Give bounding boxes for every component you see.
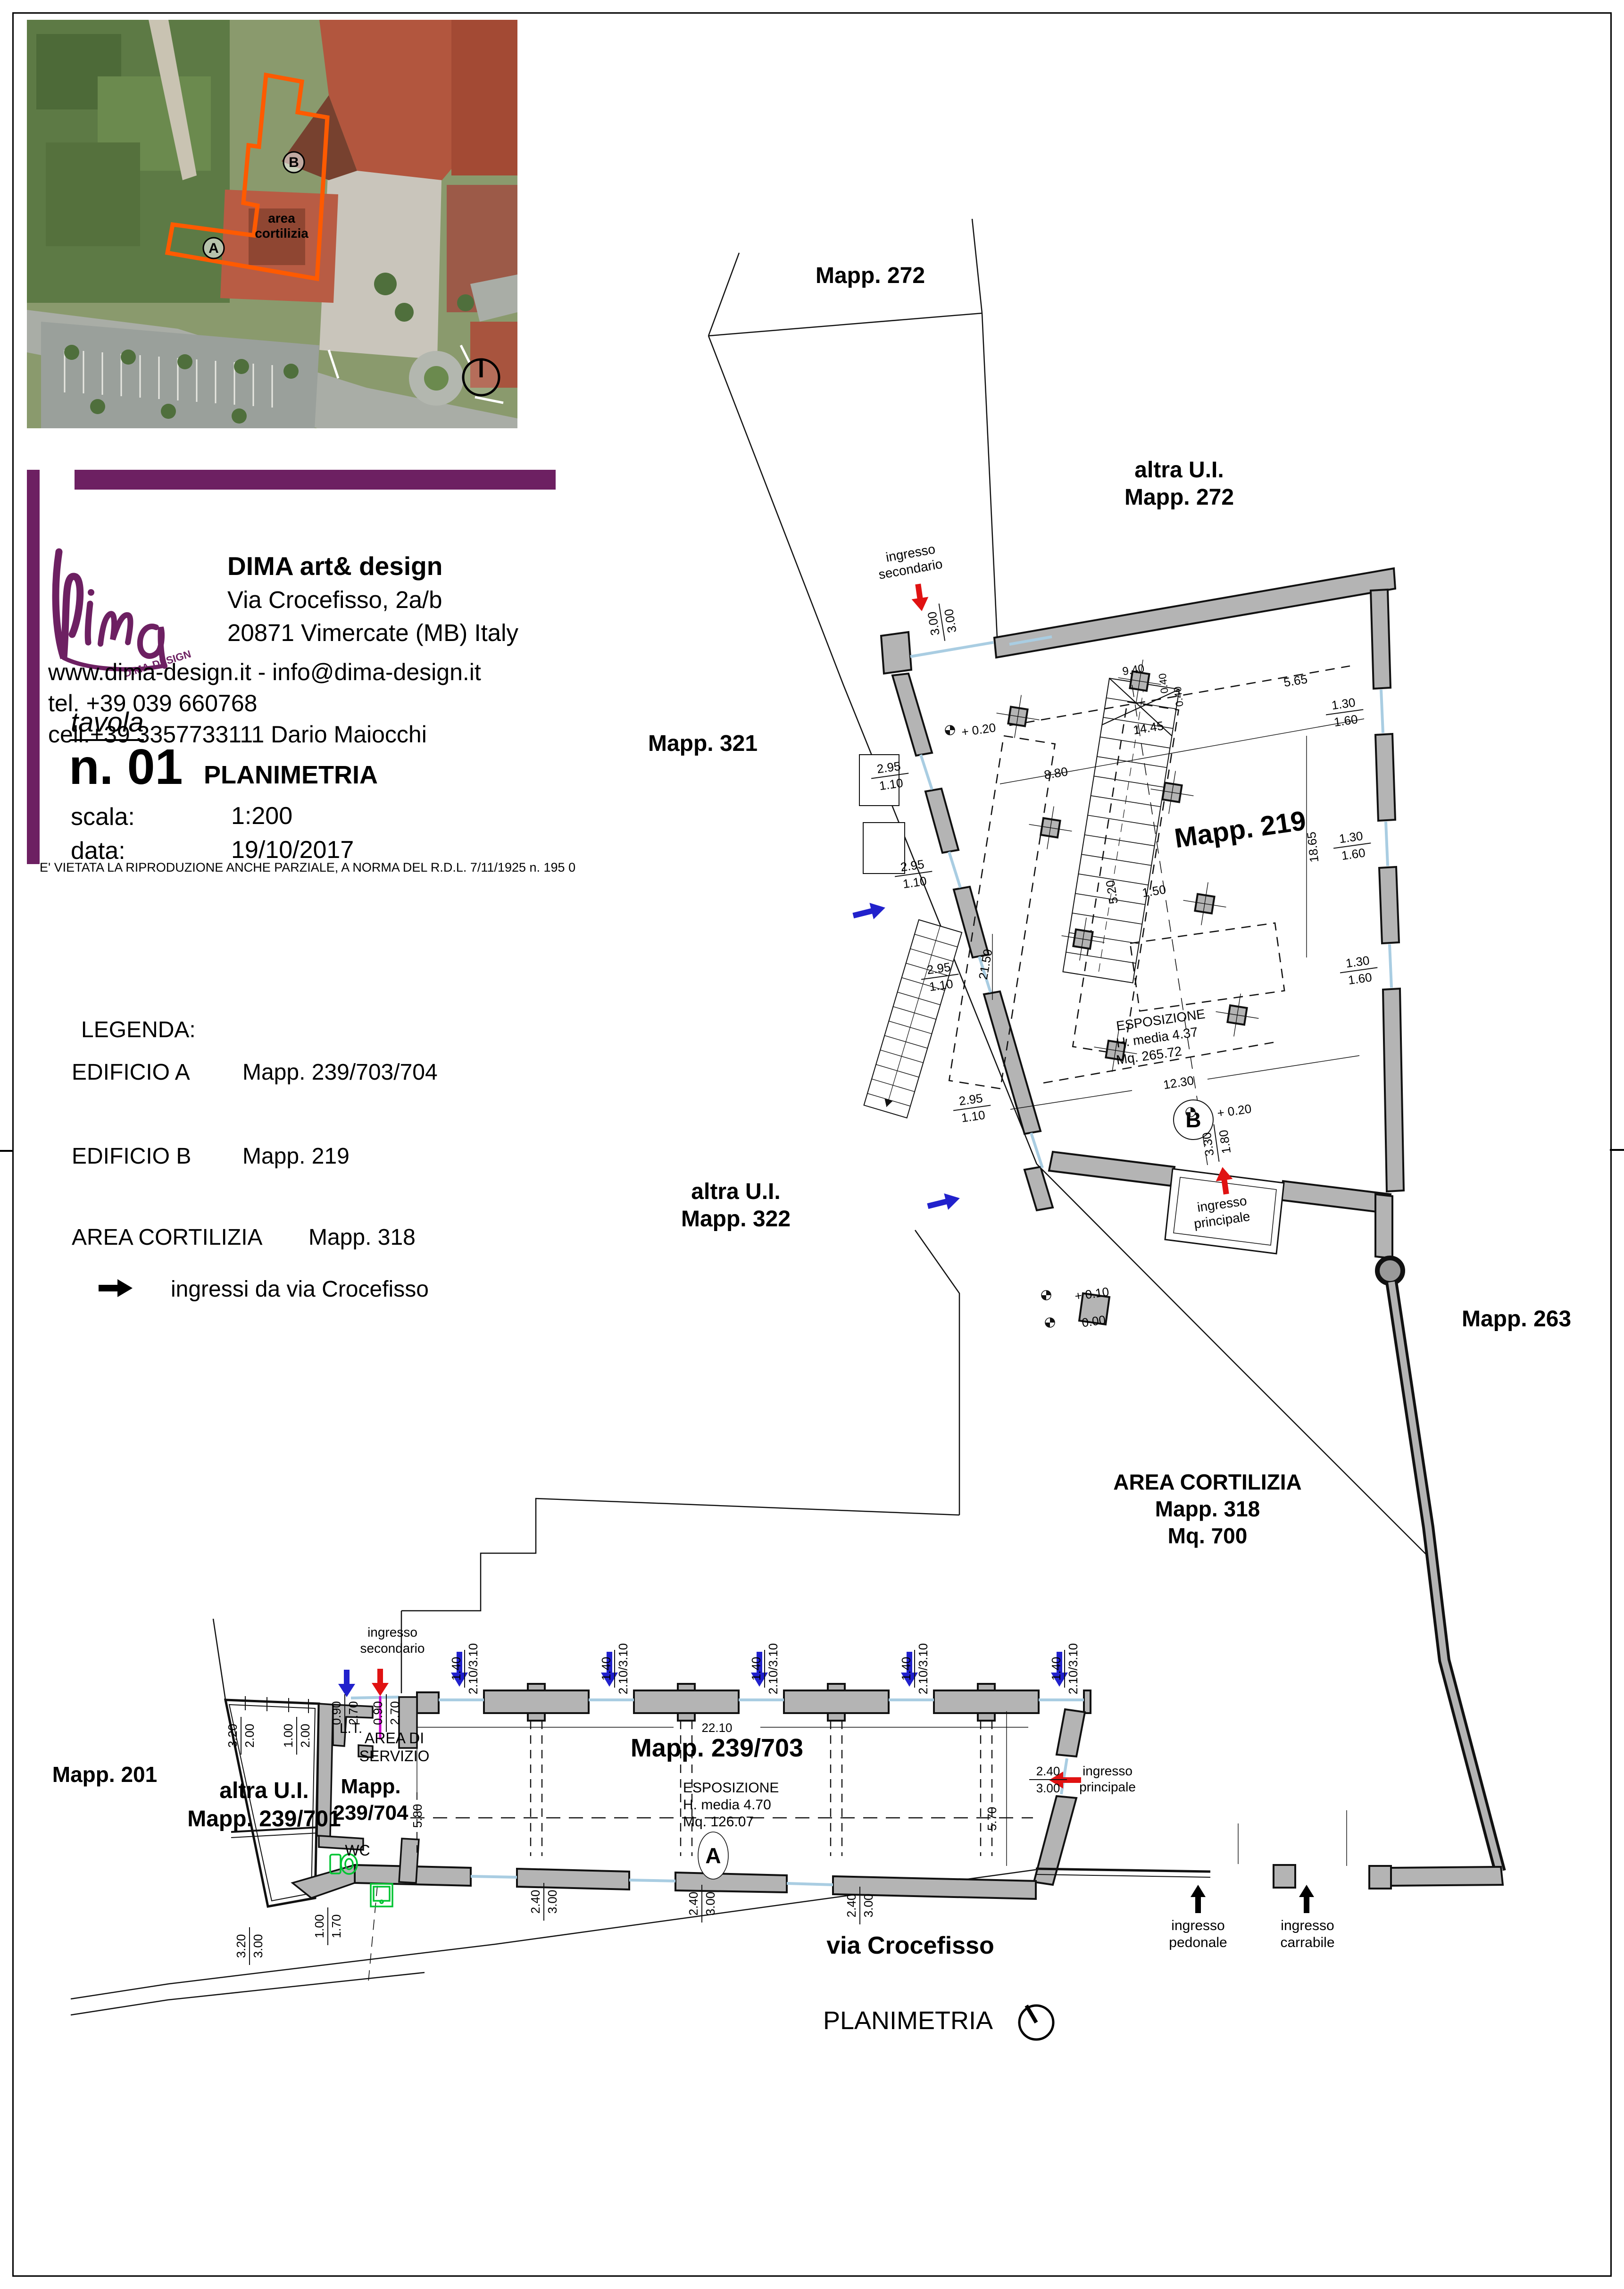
dim-8-80: 8.80 [1043,764,1069,782]
svg-text:1.30: 1.30 [1345,953,1370,971]
svg-text:2.40: 2.40 [844,1894,858,1918]
annex-win2: 3.203.00 [234,1927,265,1965]
wc-sink-icon [371,1884,392,1906]
altra-ui-mapp-272: altra U.I. [1134,458,1224,483]
a-door-sec2: 0.902.70 [371,1694,402,1732]
mapp-239-704: Mapp. [341,1775,400,1798]
a-wall [417,1692,439,1713]
a-wall [1057,1709,1085,1756]
svg-text:2.10/3.10: 2.10/3.10 [916,1643,930,1694]
dim-5-65: 5.65 [1283,672,1308,690]
svg-text:1.80: 1.80 [1216,1129,1233,1155]
svg-text:3.20: 3.20 [234,1934,248,1958]
wc-wall [292,1865,355,1898]
dim-0-40a: 0.40 [1157,673,1171,694]
svg-text:2.00: 2.00 [242,1724,257,1748]
svg-text:1.10: 1.10 [902,874,927,891]
street-fence [1036,1874,1210,1877]
a-wall [1034,1796,1076,1885]
b-column [1180,879,1229,928]
mapp-239-704: 239/704 [333,1801,408,1824]
b-wall [1049,1152,1174,1186]
ingresso-pedonale: pedonale [1169,1935,1227,1950]
annex-window-ticks [245,1696,308,1713]
dim-12-30: 12.30 [1162,1073,1195,1092]
ingresso-carrabile: ingresso [1281,1918,1334,1933]
drawing-sheet: BAareacortilizia DIMA-DESIGN DIMA art& d… [0,0,1624,2289]
label-a-ellipse: A [705,1843,721,1868]
svg-text:3.00: 3.00 [941,608,959,634]
b-wall [1375,1194,1392,1258]
mapp-201: Mapp. 201 [52,1762,157,1787]
svg-text:1.60: 1.60 [1347,970,1373,987]
gate-arrow [1191,1885,1314,1913]
site-plan: Mapp. 272altra U.I.Mapp. 272Mapp. 321alt… [0,0,1624,2289]
svg-text:2.10/3.10: 2.10/3.10 [1066,1643,1080,1694]
a-win-t5: 1.402.10/3.10 [1049,1643,1080,1694]
mapp-272-top: Mapp. 272 [816,263,925,288]
mapp-321: Mapp. 321 [648,731,758,756]
b-lightwell [863,823,905,874]
b-wall [994,568,1395,658]
svg-text:1.40: 1.40 [749,1657,763,1681]
svg-text:1.10: 1.10 [960,1107,986,1125]
svg-text:2.10/3.10: 2.10/3.10 [766,1643,780,1694]
esposizione-a: ESPOSIZIONE [683,1780,779,1796]
b-column [1025,803,1075,852]
wc-door: 1.001.70 [312,1907,343,1945]
a-win-t1: 1.402.10/3.10 [449,1643,480,1694]
dim-5-80: 5.80 [410,1804,425,1828]
svg-text:1.00: 1.00 [312,1914,326,1939]
b-wall [1379,867,1399,943]
svg-text:3.00: 3.00 [861,1894,875,1918]
ingresso-principale-a: ingresso [1083,1764,1133,1778]
plan-texts: Mapp. 272altra U.I.Mapp. 272Mapp. 321alt… [52,263,1571,2035]
annex-door1: 1.002.00 [281,1717,312,1755]
via-crocefisso: via Crocefisso [826,1932,994,1959]
lvl-b-020-top: + 0.20 [945,720,997,739]
esposizione-a: H. media 4.70 [683,1797,771,1813]
annex-partition [231,1833,319,1838]
a-wall [934,1690,1039,1713]
b-wall [1383,989,1404,1191]
gate-pillar [1369,1866,1391,1889]
svg-text:1.40: 1.40 [1049,1657,1063,1681]
svg-text:2.95: 2.95 [958,1091,983,1108]
svg-text:3.00: 3.00 [924,611,942,637]
svg-text:1.60: 1.60 [1341,845,1366,863]
svg-text:1.10: 1.10 [878,775,904,793]
area-di-servizio: SERVIZIO [359,1748,430,1765]
b-win-r3: 1.301.60 [1338,952,1379,988]
b-win-r2: 1.301.60 [1331,828,1373,864]
mapp-219: Mapp. 219 [1173,805,1308,854]
street-fence [1036,1869,1210,1872]
svg-text:0.90: 0.90 [371,1701,385,1725]
svg-text:1.70: 1.70 [329,1914,343,1939]
svg-text:1.00: 1.00 [281,1724,295,1748]
area-di-servizio: AREA DI [365,1730,424,1747]
svg-text:2.40: 2.40 [686,1892,700,1916]
svg-text:2.10/3.10: 2.10/3.10 [616,1643,630,1694]
b-wall [925,789,958,853]
gate-pillar [1274,1865,1295,1888]
altra-ui-mapp-272: Mapp. 272 [1124,485,1234,510]
a-wall [784,1690,889,1713]
room-wc: WC [345,1842,370,1859]
lvl-000: 0.00 [1045,1313,1107,1330]
svg-text:2.40: 2.40 [528,1890,542,1914]
svg-text:2.95: 2.95 [899,857,925,874]
wc-wall [399,1839,419,1883]
ingresso-carrabile: carrabile [1280,1935,1334,1950]
altra-ui-mapp-239-701: altra U.I. [219,1778,308,1803]
svg-text:3.30: 3.30 [1199,1132,1217,1157]
area-cortilizia-318: Mq. 700 [1168,1523,1248,1548]
street-boundary [1036,1865,1503,1889]
b-centerline [1132,685,1208,1165]
svg-text:3.00: 3.00 [251,1934,265,1958]
b-wall [1371,590,1391,689]
b-win-l4: 2.951.10 [951,1090,992,1126]
svg-text:1.10: 1.10 [928,976,954,994]
b-column [993,691,1042,741]
svg-text:2.00: 2.00 [298,1724,312,1748]
area-cortilizia-318: AREA CORTILIZIA [1113,1470,1302,1494]
a-win-t2: 1.402.10/3.10 [599,1643,630,1694]
dim-22-10: 22.10 [701,1721,732,1735]
a-win-t4: 1.402.10/3.10 [899,1643,930,1694]
a-wall [675,1873,787,1892]
dim-5-70: 5.70 [985,1807,999,1831]
ingresso-pedonale: ingresso [1171,1918,1224,1933]
svg-text:+ 0.20: + 0.20 [1216,1101,1252,1120]
dim-18-65: 18.65 [1304,831,1322,863]
svg-text:+ 0.20: + 0.20 [961,720,997,739]
svg-text:1.40: 1.40 [899,1657,913,1681]
svg-text:1.60: 1.60 [1333,712,1358,729]
a-win-t3: 1.402.10/3.10 [749,1643,780,1694]
svg-text:2.70: 2.70 [346,1701,360,1725]
building-a [351,1684,1347,1899]
svg-text:0.90: 0.90 [329,1701,343,1725]
ingresso-secondario-a: ingresso [367,1625,417,1640]
svg-text:1.40: 1.40 [599,1657,613,1681]
b-exterior-stair [864,920,962,1118]
north-indicator [1019,2006,1053,2039]
a-wall [484,1690,589,1713]
esposizione-a: Mq. 126.07 [683,1814,754,1830]
svg-text:3.00: 3.00 [1036,1781,1060,1795]
b-corner-column [1377,1258,1403,1283]
svg-text:3.00: 3.00 [545,1890,559,1914]
planimetria-caption: PLANIMETRIA [823,2006,993,2035]
a-wall [1084,1690,1091,1713]
ingresso-principale-a: principale [1079,1780,1136,1794]
dim-1-50: 1.50 [1141,882,1167,900]
svg-text:3.00: 3.00 [703,1892,717,1916]
b-wall [881,632,911,674]
a-wall [634,1690,739,1713]
svg-text:2.40: 2.40 [1036,1764,1060,1778]
svg-text:1.40: 1.40 [449,1657,463,1681]
dim-0-40b: 0.40 [1172,686,1186,708]
svg-text:0.00: 0.00 [1081,1313,1107,1330]
svg-text:2.70: 2.70 [388,1701,402,1725]
altra-ui-mapp-322: Mapp. 322 [681,1207,791,1232]
b-wall [1280,1181,1391,1213]
b-wall [1024,1167,1053,1210]
boundary-wall-east [1391,1282,1500,1872]
mapp-239-703: Mapp. 239/703 [631,1734,803,1762]
svg-text:3.20: 3.20 [225,1724,240,1748]
street-wall [1391,1867,1503,1886]
ingresso-secondario-a: secondario [360,1641,425,1656]
a-dim-lines [417,1711,1347,1866]
svg-text:2.10/3.10: 2.10/3.10 [466,1643,480,1694]
a-wall [517,1869,629,1889]
b-wall [1375,734,1395,821]
altra-ui-mapp-239-701: Mapp. 239/701 [187,1806,341,1831]
b-wall [954,887,989,957]
b-wall [892,674,932,756]
mapp-263: Mapp. 263 [1462,1307,1571,1332]
altra-ui-mapp-322: altra U.I. [691,1179,780,1204]
building-b [859,568,1404,1324]
svg-text:1.30: 1.30 [1338,829,1364,846]
svg-text:1.30: 1.30 [1331,695,1356,713]
b-door-top: 3.003.00 [924,601,960,643]
area-cortilizia-318: Mapp. 318 [1155,1497,1260,1521]
